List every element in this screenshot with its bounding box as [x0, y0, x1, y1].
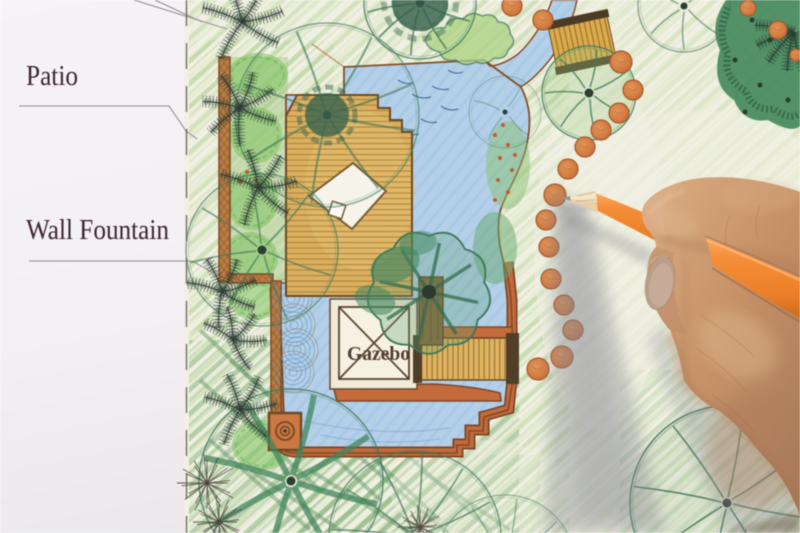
svg-text:Patio: Patio	[26, 60, 78, 92]
svg-text:Wall Fountain: Wall Fountain	[26, 214, 169, 246]
